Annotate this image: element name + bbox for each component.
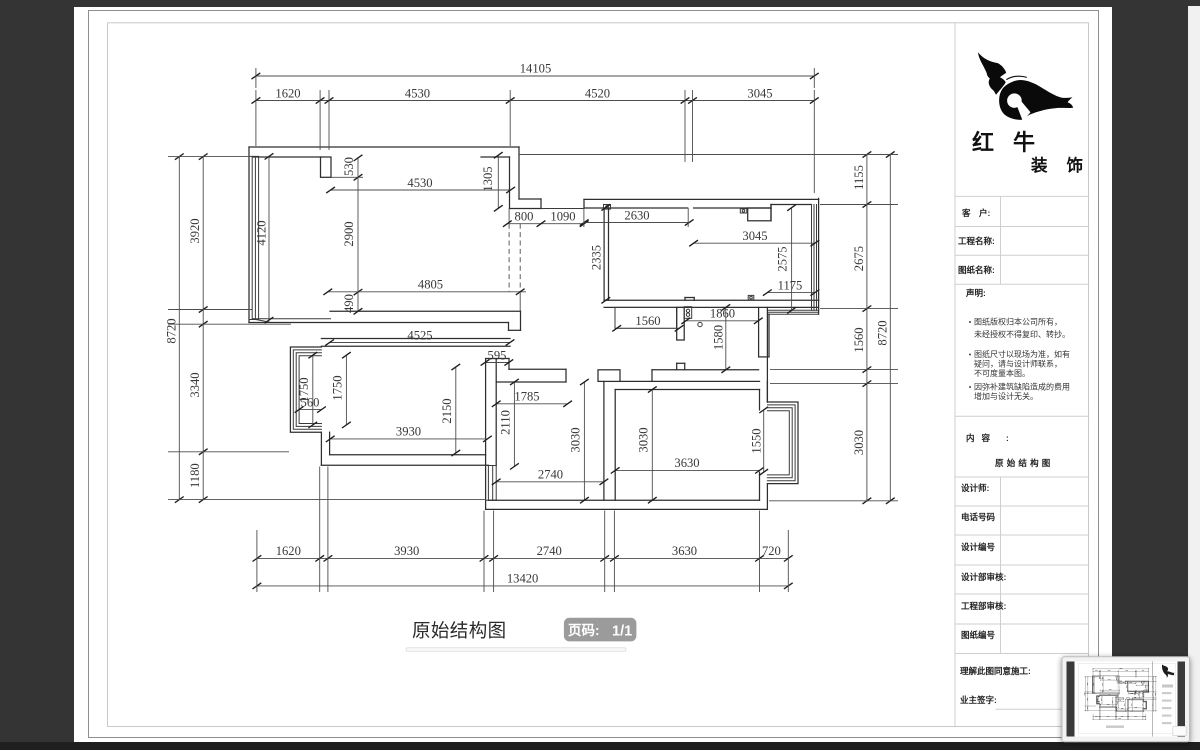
svg-text:4525: 4525 (407, 328, 432, 342)
svg-text:3030: 3030 (852, 430, 866, 455)
svg-text:声明:: 声明: (965, 288, 986, 298)
svg-text:3930: 3930 (394, 544, 419, 558)
svg-text:装饰: 装饰 (1031, 155, 1102, 175)
svg-text:设计编号: 设计编号 (961, 542, 996, 552)
svg-text:客 户:: 客 户: (961, 208, 991, 218)
svg-text:1560: 1560 (635, 314, 660, 328)
svg-text:800: 800 (515, 210, 534, 224)
svg-text:内容: 内容 (966, 433, 997, 443)
svg-text:1860: 1860 (710, 307, 735, 321)
svg-text:3630: 3630 (674, 456, 699, 470)
svg-text:720: 720 (762, 544, 781, 558)
svg-text:2630: 2630 (624, 208, 649, 222)
svg-text:增加与设计无关。: 增加与设计无关。 (974, 391, 1038, 401)
svg-text:原始结构图: 原始结构图 (412, 620, 507, 641)
svg-text:4530: 4530 (407, 176, 432, 190)
svg-text:1560: 1560 (852, 327, 866, 352)
svg-text:电话号码: 电话号码 (961, 512, 996, 522)
svg-text:3630: 3630 (672, 544, 697, 558)
svg-text:560: 560 (301, 395, 320, 409)
svg-text:1785: 1785 (514, 390, 539, 404)
svg-text:图纸编号: 图纸编号 (961, 630, 996, 640)
svg-text:3045: 3045 (747, 86, 772, 100)
svg-text:不可度量本图。: 不可度量本图。 (974, 368, 1030, 378)
svg-text:13420: 13420 (507, 572, 538, 586)
svg-text:1750: 1750 (330, 375, 344, 400)
svg-text:3340: 3340 (188, 372, 202, 397)
svg-text::: : (1006, 433, 1009, 443)
svg-text:1305: 1305 (481, 166, 495, 191)
svg-text:8720: 8720 (164, 318, 178, 343)
svg-text:设计师:: 设计师: (961, 483, 990, 493)
svg-text:2675: 2675 (852, 246, 866, 271)
svg-text:595: 595 (488, 348, 507, 362)
svg-text:3030: 3030 (568, 427, 582, 452)
svg-text:1620: 1620 (276, 544, 301, 558)
svg-text:1155: 1155 (852, 165, 866, 190)
svg-text:4805: 4805 (418, 278, 443, 292)
svg-text:原始结构图: 原始结构图 (995, 458, 1054, 468)
svg-text:图纸尺寸以现场为准，如有: 图纸尺寸以现场为准，如有 (974, 349, 1070, 359)
svg-text:3030: 3030 (636, 427, 650, 452)
svg-text:2740: 2740 (537, 544, 562, 558)
svg-text:因弥补建筑缺陷造成的费用: 因弥补建筑缺陷造成的费用 (974, 382, 1070, 392)
svg-text:1580: 1580 (711, 325, 725, 350)
svg-text:设计部审核:: 设计部审核: (961, 572, 1007, 582)
svg-text:4520: 4520 (585, 86, 610, 100)
svg-text:3045: 3045 (742, 229, 767, 243)
svg-text:2740: 2740 (538, 468, 563, 482)
svg-text:疑问，请与设计师联系，: 疑问，请与设计师联系， (974, 359, 1062, 369)
svg-text:页码:: 页码: (568, 623, 600, 638)
svg-text:理解此图同意施工:: 理解此图同意施工: (960, 666, 1031, 676)
svg-text:2575: 2575 (776, 246, 790, 271)
svg-text:2110: 2110 (498, 410, 512, 435)
svg-text:1175: 1175 (778, 278, 803, 292)
svg-text:2150: 2150 (440, 398, 454, 423)
svg-text:3930: 3930 (396, 425, 421, 439)
svg-text:1620: 1620 (275, 86, 300, 100)
svg-text:1550: 1550 (750, 428, 764, 453)
svg-text:工程部审核:: 工程部审核: (961, 601, 1007, 611)
svg-text:2335: 2335 (590, 245, 604, 270)
svg-text:1090: 1090 (550, 210, 575, 224)
svg-text:3920: 3920 (188, 218, 202, 243)
svg-text:530: 530 (342, 157, 356, 176)
svg-text:工程名称:: 工程名称: (958, 236, 995, 246)
svg-text:4120: 4120 (255, 220, 269, 245)
svg-text:490: 490 (342, 294, 356, 313)
svg-text:未经授权不得复印、转抄。: 未经授权不得复印、转抄。 (974, 329, 1070, 339)
svg-text:业主签字:: 业主签字: (960, 695, 997, 705)
svg-text:8720: 8720 (875, 320, 889, 345)
svg-text:1/1: 1/1 (612, 624, 632, 640)
svg-text:14105: 14105 (520, 62, 551, 76)
svg-text:1180: 1180 (188, 463, 202, 488)
svg-text:2900: 2900 (342, 221, 356, 246)
svg-text:红牛: 红牛 (972, 130, 1054, 155)
svg-text:图纸名称:: 图纸名称: (958, 265, 995, 275)
svg-text:4530: 4530 (405, 86, 430, 100)
svg-text:图纸版权归本公司所有，: 图纸版权归本公司所有， (974, 317, 1062, 327)
